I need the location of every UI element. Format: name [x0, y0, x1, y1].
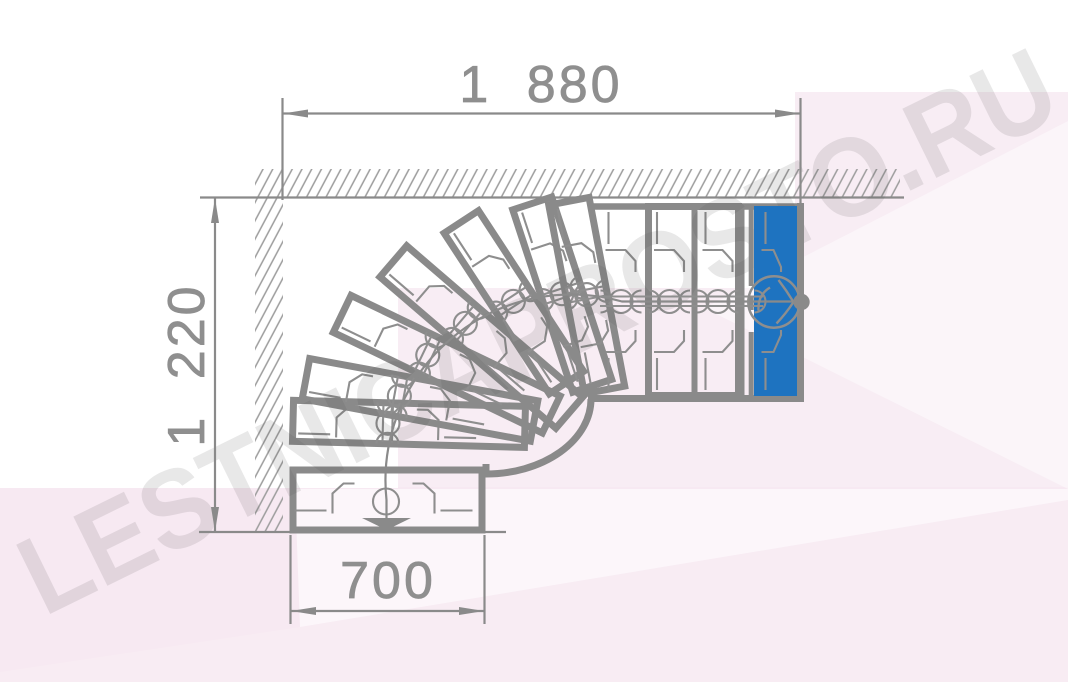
svg-text:700: 700: [340, 552, 436, 610]
svg-text:1 880: 1 880: [459, 56, 622, 114]
svg-text:1 220: 1 220: [158, 283, 216, 446]
